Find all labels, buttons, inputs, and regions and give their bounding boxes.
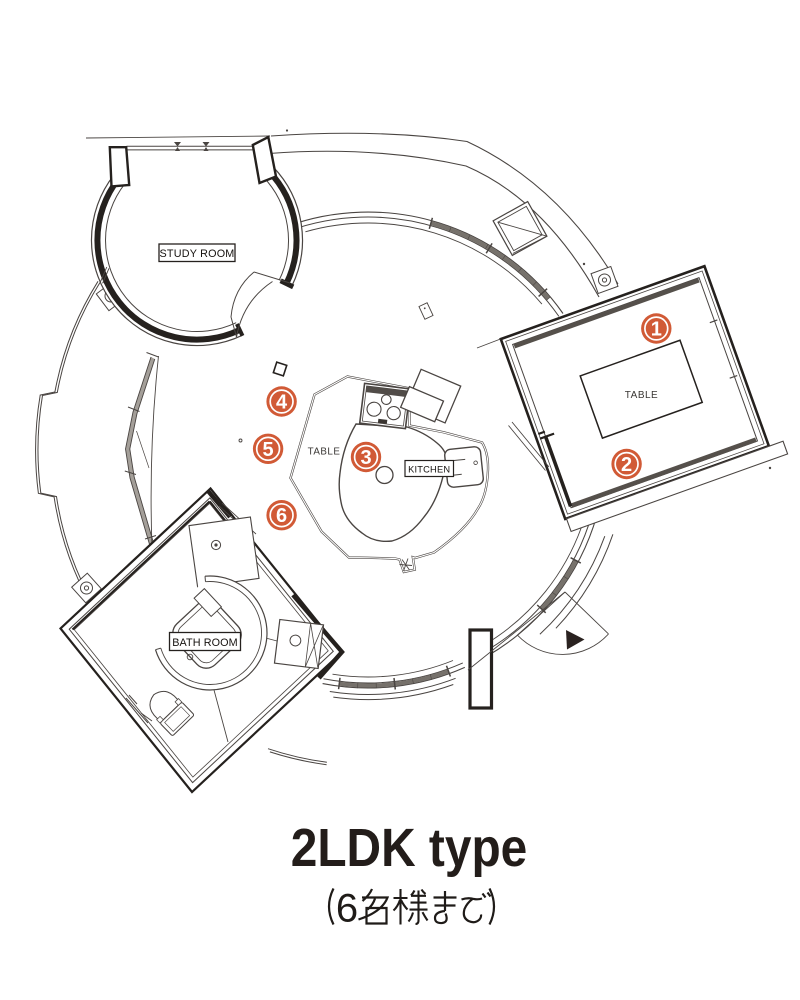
svg-text:STUDY ROOM: STUDY ROOM [160,248,235,260]
svg-text:TABLE: TABLE [625,390,658,401]
svg-text:BATH ROOM: BATH ROOM [172,637,237,649]
svg-text:2LDK type: 2LDK type [291,817,528,877]
svg-text:4: 4 [276,392,288,414]
svg-text:KITCHEN: KITCHEN [408,464,450,474]
svg-text:TABLE: TABLE [308,447,341,458]
svg-text:6: 6 [336,887,358,931]
svg-text:2: 2 [621,454,632,476]
svg-text:1: 1 [651,319,662,341]
svg-text:3: 3 [360,447,371,469]
svg-text:6: 6 [276,505,287,527]
svg-text:5: 5 [263,439,274,461]
